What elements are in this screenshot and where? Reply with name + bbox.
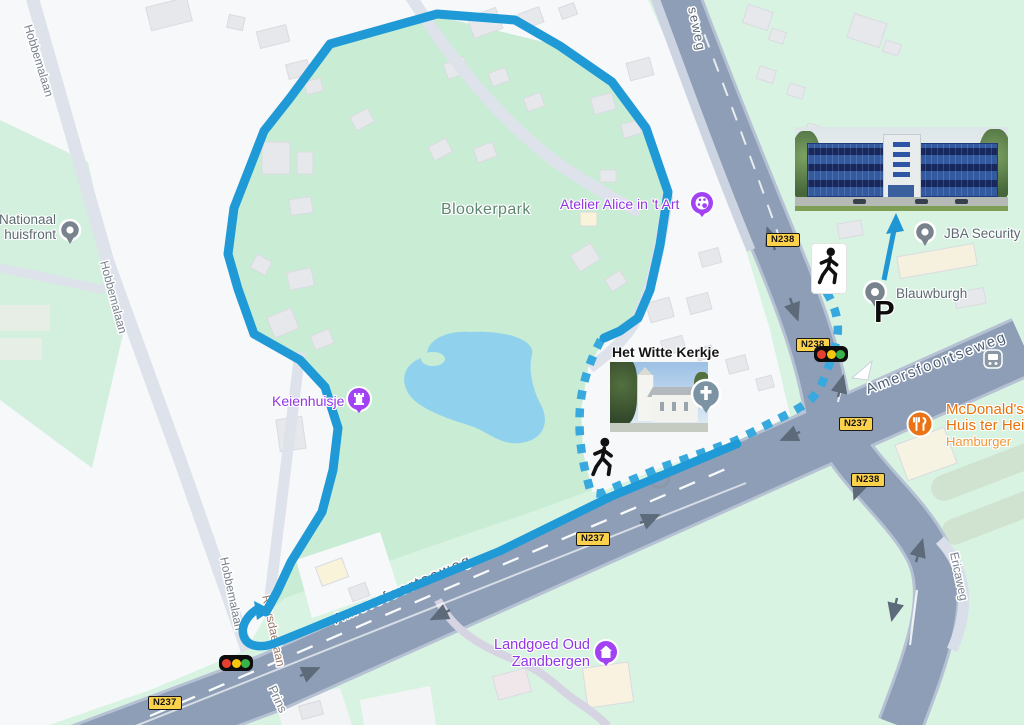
road-badge-n237: N237 <box>148 696 182 710</box>
traffic-light-icon <box>219 655 253 671</box>
blookerpark-label[interactable]: Blookerpark <box>441 201 531 219</box>
het-witte-kerkje-label: Het Witte Kerkje <box>612 344 719 360</box>
photo-church-window <box>672 402 676 411</box>
nationaal-place-pin[interactable] <box>56 216 84 255</box>
photo-ground <box>795 197 1008 206</box>
road-badge-n238: N238 <box>851 473 885 487</box>
mcdonalds-line2: Huis ter Heide <box>946 418 1024 434</box>
photo-building-wing <box>807 143 887 197</box>
plot <box>0 338 42 360</box>
road-badge-n238: N238 <box>766 233 800 247</box>
keienhuisje-castle-pin[interactable] <box>345 385 373 424</box>
photo-tree <box>610 362 637 425</box>
mcdonalds-label[interactable]: McDonald's Huis ter Heide Hamburger <box>946 402 1024 449</box>
photo-church-window <box>660 402 664 411</box>
landgoed-line2: Zandbergen <box>472 654 590 671</box>
traffic-light-green <box>241 659 250 668</box>
mcdonalds-line3: Hamburger <box>946 434 1024 449</box>
het-witte-kerkje-church-pin[interactable] <box>688 376 724 427</box>
landgoed-label[interactable]: Landgoed Oud Zandbergen <box>472 637 590 671</box>
photo-grass <box>795 206 1008 211</box>
nationaal-line1: Nationaal <box>0 212 56 227</box>
parking-symbol: P <box>874 294 895 330</box>
atelier-label[interactable]: Atelier Alice in 't Art <box>560 196 679 212</box>
traffic-light-green <box>836 350 845 359</box>
keienhuisje-label[interactable]: Keienhuisje <box>272 393 344 409</box>
mcdonalds-line1: McDonald's <box>946 402 1024 418</box>
landgoed-line1: Landgoed Oud <box>472 637 590 654</box>
traffic-light-yellow <box>232 659 241 668</box>
traffic-light-red <box>817 350 826 359</box>
traffic-light-icon <box>814 346 848 362</box>
photo-car <box>915 199 928 204</box>
road-badge-n237: N237 <box>839 417 873 431</box>
pedestrian-icon <box>812 244 846 293</box>
nationaal-line2: huisfront <box>0 227 56 242</box>
mcdonalds-restaurant-pin[interactable] <box>905 409 935 446</box>
traffic-light-red <box>222 659 231 668</box>
bus-stop-icon[interactable] <box>982 348 1004 375</box>
landgoed-estate-pin[interactable] <box>592 638 620 677</box>
nationaal-label[interactable]: Nationaal huisfront <box>0 212 56 242</box>
jba-security-label[interactable]: JBA Security <box>944 226 1021 241</box>
map-canvas[interactable]: Hobbemalaan Hobbemalaan Hobbemalaan Ruys… <box>0 0 1024 725</box>
pedestrian-icon <box>588 436 618 483</box>
photo-car <box>955 199 968 204</box>
road-badge-n237: N237 <box>576 532 610 546</box>
atelier-palette-pin[interactable] <box>688 189 716 228</box>
jba-security-pin[interactable] <box>911 218 939 257</box>
photo-car <box>853 199 866 204</box>
plot <box>0 305 50 331</box>
map-base-layer: Hobbemalaan Hobbemalaan Hobbemalaan Ruys… <box>0 0 1024 725</box>
blauwburgh-label[interactable]: Blauwburgh <box>896 286 967 301</box>
photo-building-wing <box>918 143 998 197</box>
office-building-photo <box>795 127 1008 211</box>
pond-island <box>421 352 445 366</box>
traffic-light-yellow <box>827 350 836 359</box>
